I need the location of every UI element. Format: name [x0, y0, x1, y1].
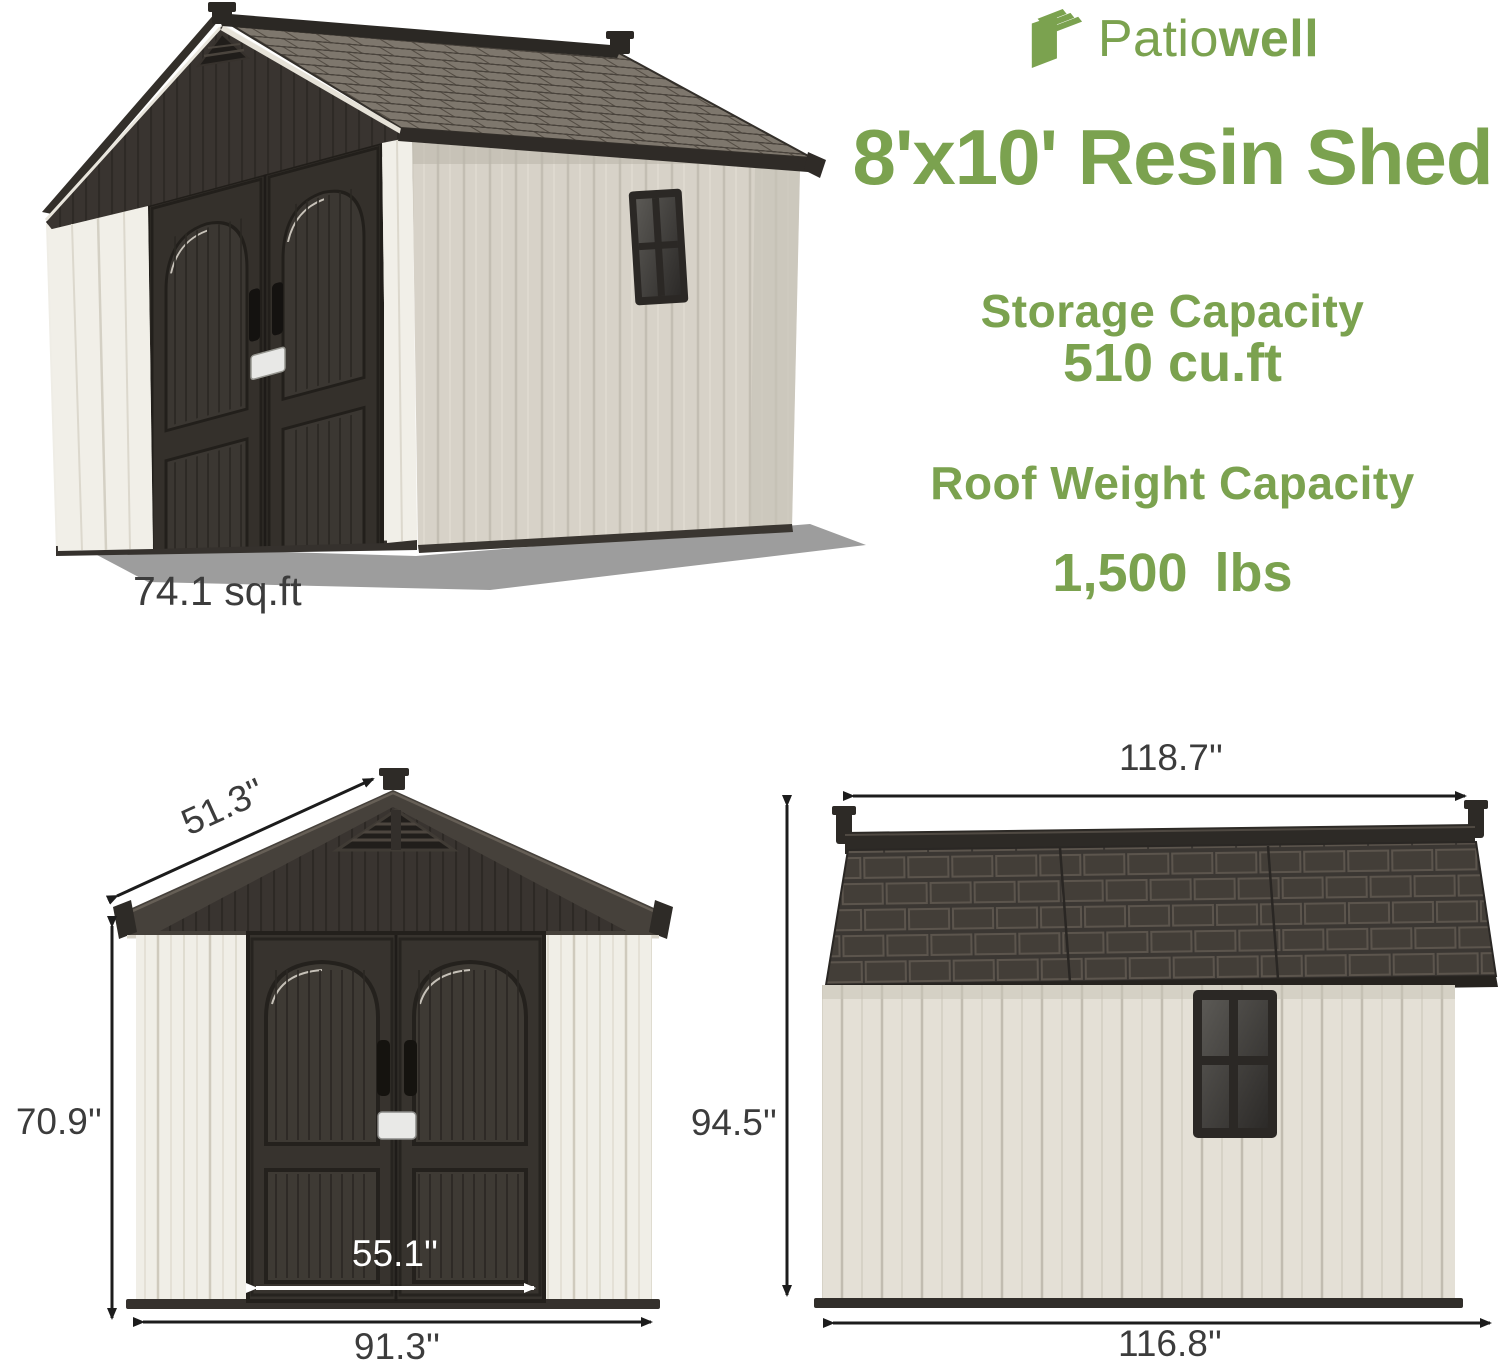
brand-logo-text: Patiowell	[1098, 9, 1319, 69]
spec-label-storage: Storage Capacity	[845, 284, 1500, 338]
spec-label-roof-weight: Roof Weight Capacity	[845, 456, 1500, 510]
shed-front-view: 55.1'' 91.3'' 70.9'' 51.3''	[0, 752, 700, 1362]
logo-text-regular: Patio	[1098, 10, 1219, 68]
side-window	[1193, 990, 1277, 1138]
spec-value-roof-weight: 1,500 lbs	[845, 542, 1500, 604]
floor-area-label: 74.1 sq.ft	[133, 568, 302, 615]
shed-side-view: 118.7'' 94.5'' 116.8''	[640, 702, 1500, 1362]
front-roof	[113, 768, 673, 939]
overall-height-label: 94.5''	[691, 1102, 777, 1143]
side-wall-3d	[410, 130, 810, 560]
wall-length-label: 116.8''	[1118, 1323, 1222, 1362]
brand-logo: Patiowell	[845, 6, 1500, 72]
product-title: 8'x10' Resin Shed	[845, 112, 1500, 203]
side-roof	[824, 800, 1498, 996]
wall-height-label: 70.9''	[16, 1101, 102, 1142]
product-infographic: 74.1 sq.ft Patiowell 8'x10' Resin Shed S…	[0, 0, 1500, 1362]
overall-width-label: 91.3''	[354, 1326, 440, 1362]
shed-3d-view	[20, 0, 880, 625]
patiowell-logo-icon	[1026, 6, 1084, 72]
door-width-label: 55.1''	[352, 1233, 438, 1274]
side-wall	[814, 985, 1463, 1308]
spec-value-storage: 510 cu.ft	[845, 332, 1500, 394]
roof-length-label: 118.7''	[1119, 737, 1223, 778]
logo-text-bold: well	[1219, 10, 1319, 68]
side-window-3d	[629, 188, 689, 305]
